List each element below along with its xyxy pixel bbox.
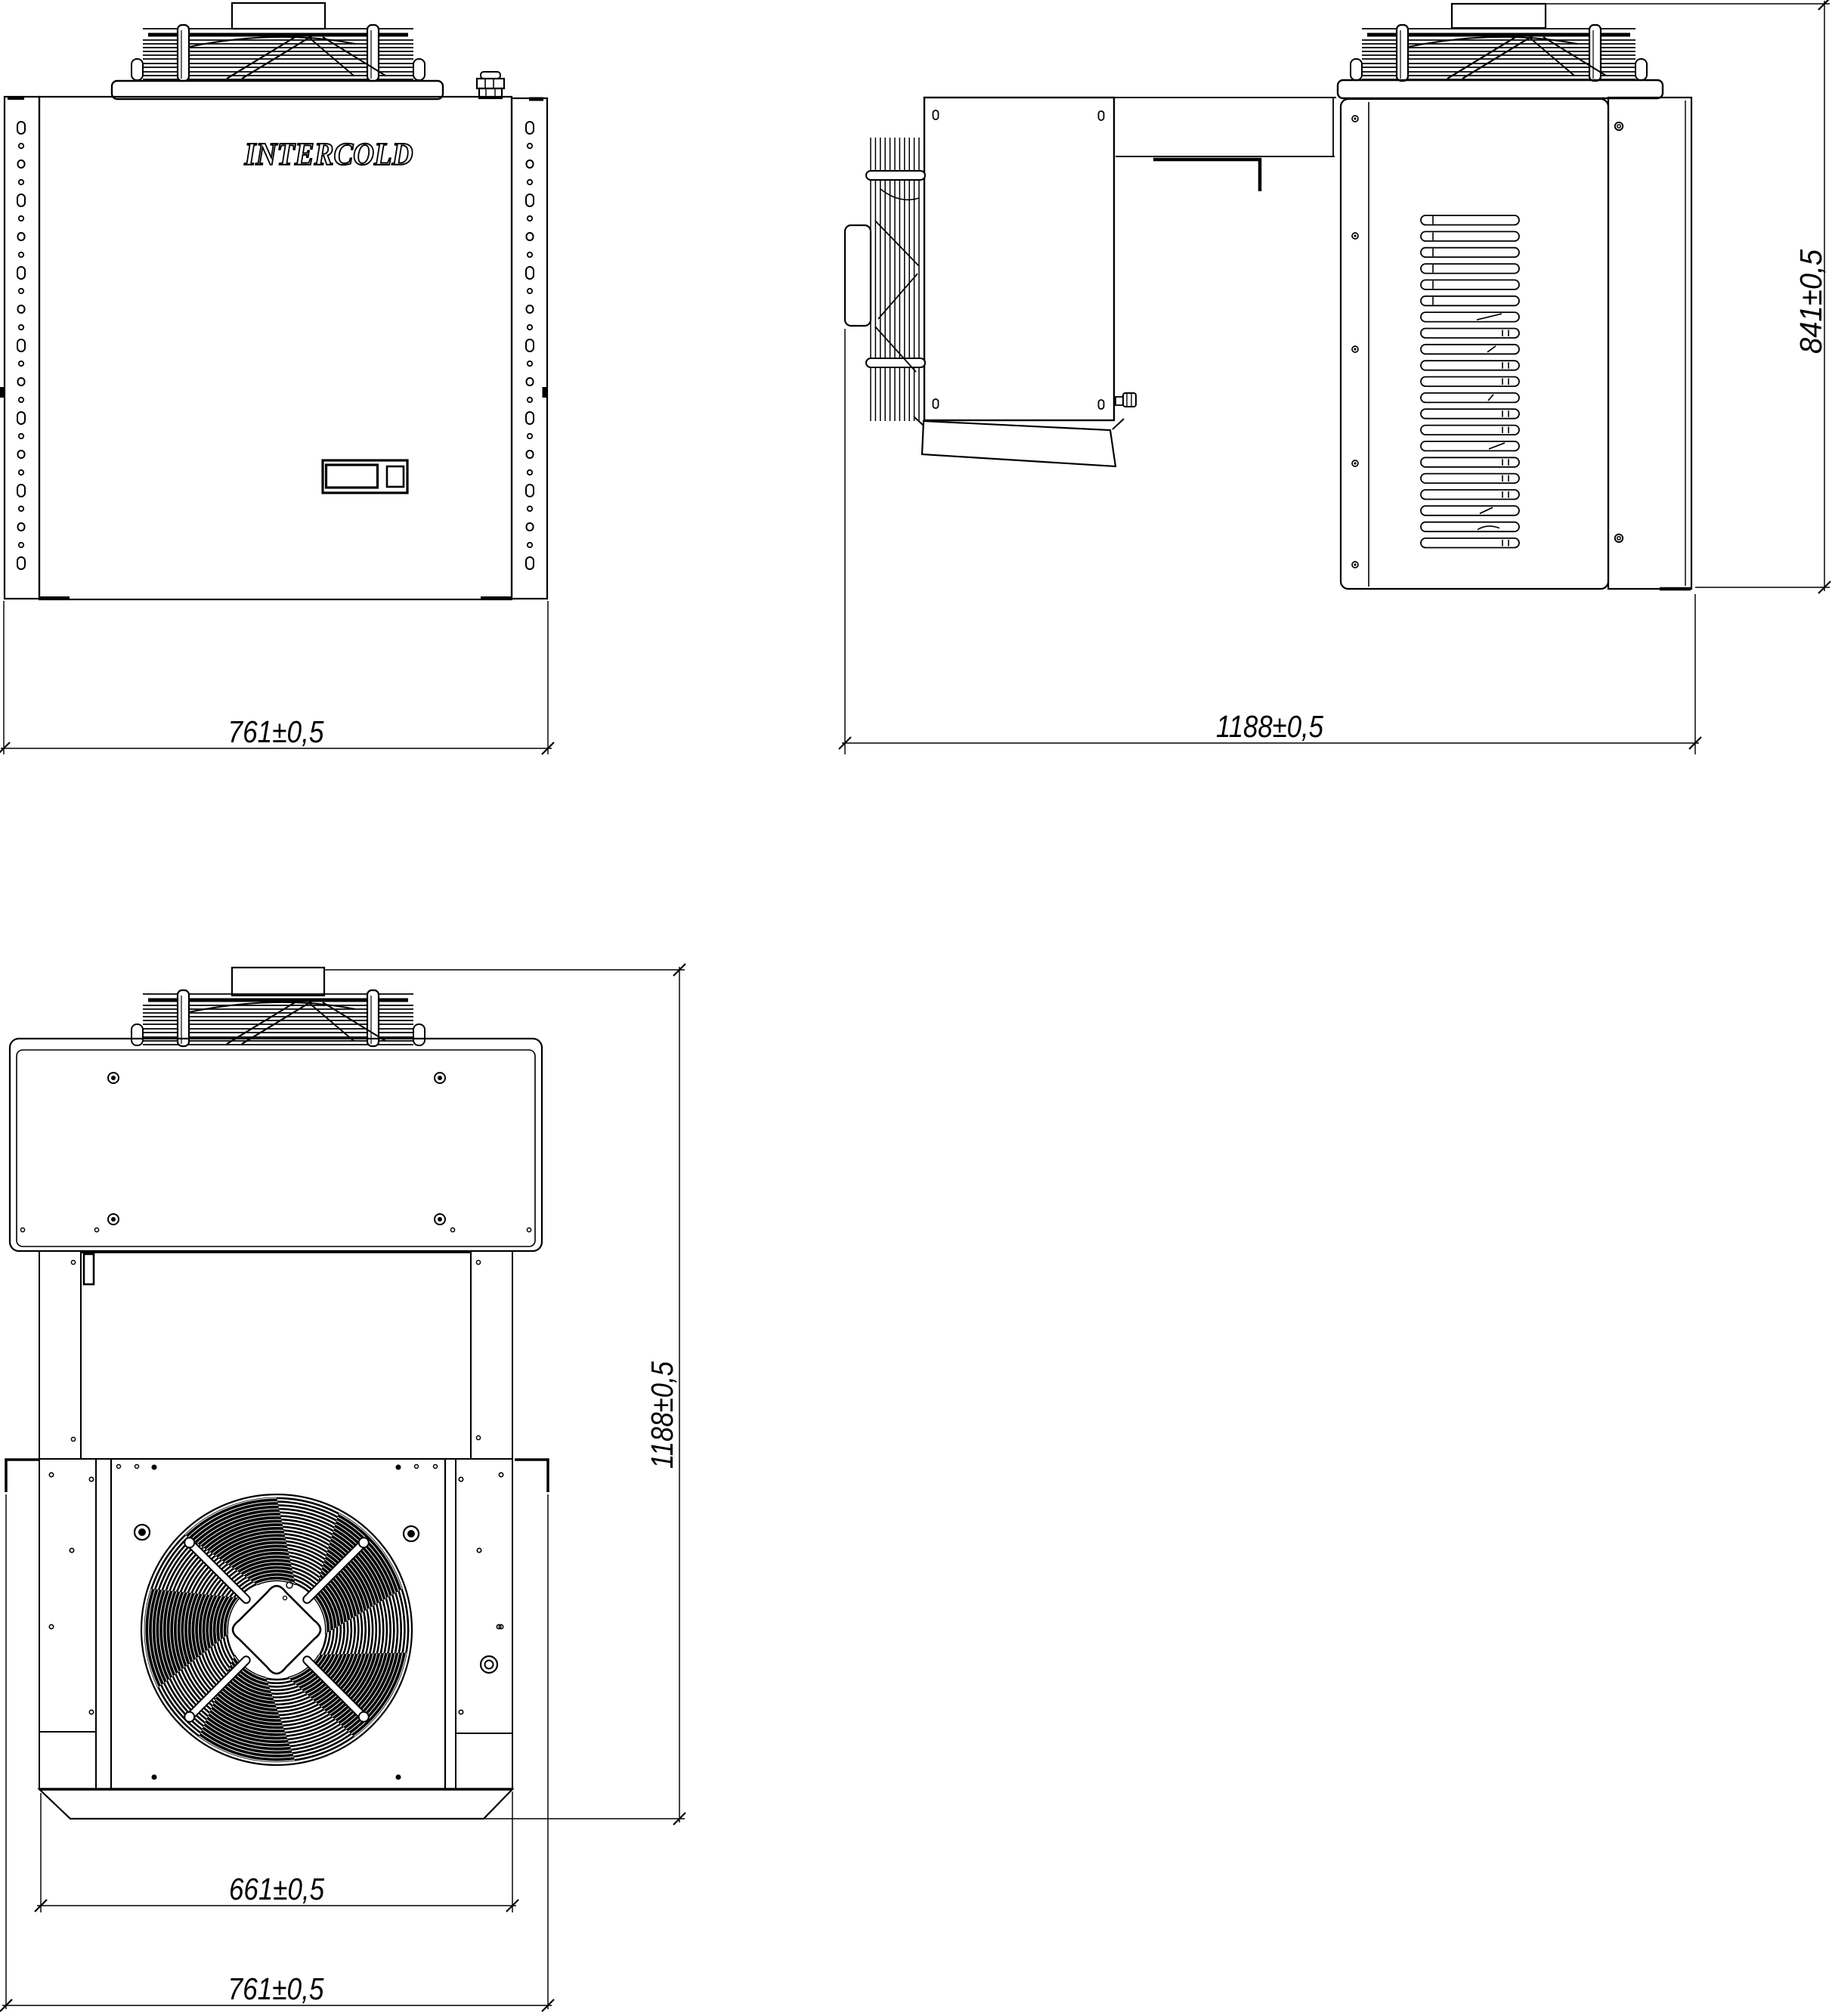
svg-text:1188±0,5: 1188±0,5 bbox=[1216, 709, 1323, 744]
svg-text:841±0,5: 841±0,5 bbox=[1793, 249, 1828, 354]
svg-text:661±0,5: 661±0,5 bbox=[229, 1872, 324, 1906]
svg-text:761±0,5: 761±0,5 bbox=[228, 714, 324, 749]
svg-text:1188±0,5: 1188±0,5 bbox=[645, 1361, 679, 1469]
svg-text:761±0,5: 761±0,5 bbox=[228, 1971, 324, 2006]
svg-text:INTERCOLD: INTERCOLD bbox=[244, 138, 413, 172]
